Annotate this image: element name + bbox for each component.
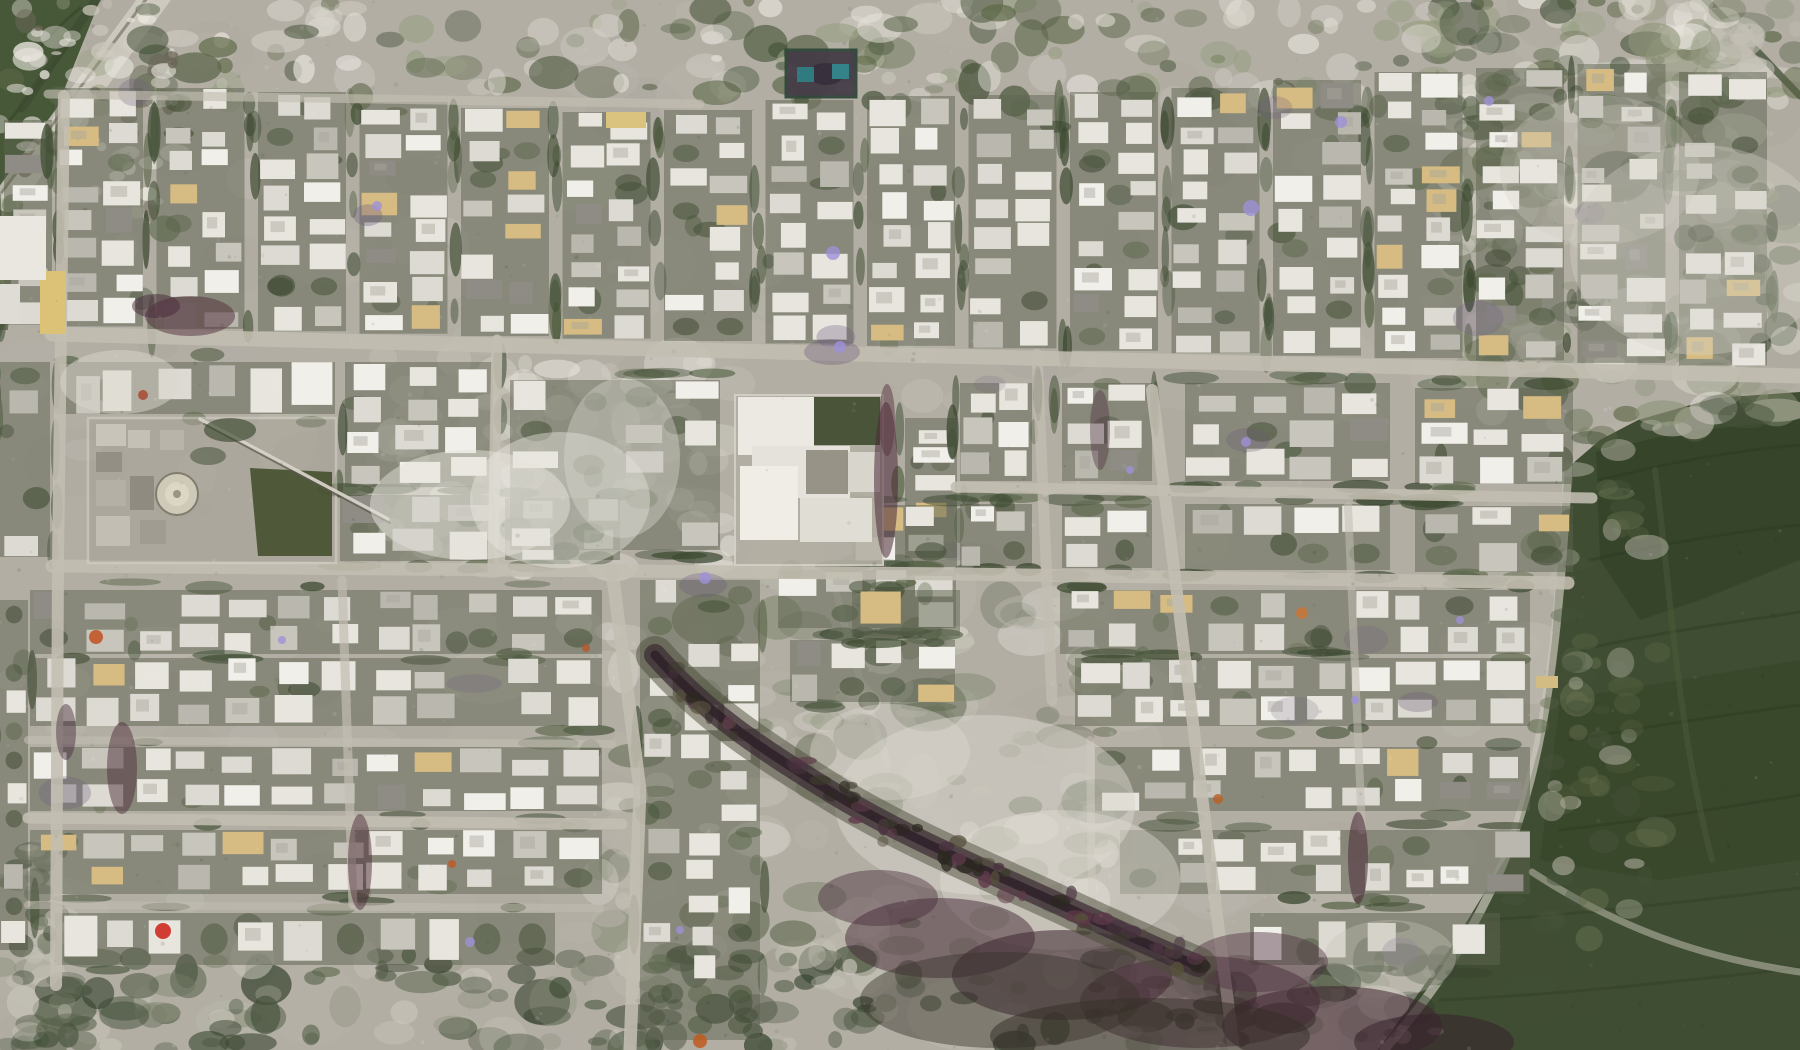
satellite-photo: Satellite view of a war-damaged desert t… — [0, 0, 1800, 1050]
satellite-image-canvas — [0, 0, 1800, 1050]
